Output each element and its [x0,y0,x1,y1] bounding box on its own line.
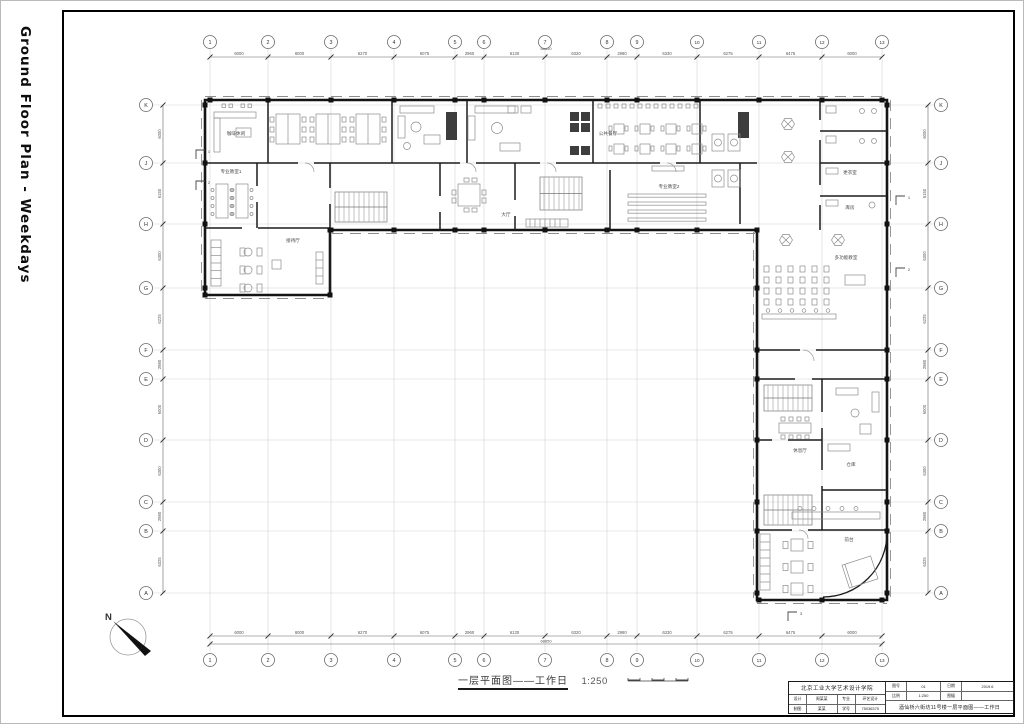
svg-text:B: B [939,529,943,535]
svg-text:K: K [144,103,148,109]
svg-text:6000: 6000 [295,51,305,56]
svg-text:3: 3 [330,40,333,46]
title-block: 北京工业大学艺术设计学院 设计 周某某 专业 环艺设计 制图 某某 学号 750… [788,681,1014,714]
svg-text:B: B [144,529,148,535]
info-label: 日期 [941,682,962,691]
svg-text:K: K [939,103,943,109]
room-label-classroom1: 专业教室1 [221,168,242,175]
svg-text:6300: 6300 [157,466,162,476]
svg-text:6325: 6325 [922,557,927,567]
svg-text:6475: 6475 [786,51,796,56]
school-name: 北京工业大学艺术设计学院 [789,682,885,695]
svg-text:1: 1 [209,658,212,664]
svg-text:H: H [939,222,943,228]
svg-text:J: J [940,161,943,167]
svg-text:68850: 68850 [540,639,552,644]
svg-text:3: 3 [330,658,333,664]
svg-text:J: J [145,161,148,167]
info-value: 01 [907,682,941,691]
svg-text:6000: 6000 [847,630,857,635]
info-label: 比例 [886,692,907,701]
svg-text:6270: 6270 [358,51,368,56]
svg-text:10: 10 [694,658,700,663]
svg-text:2980: 2980 [922,359,927,369]
svg-text:10: 10 [694,40,700,45]
svg-text:6000: 6000 [234,630,244,635]
svg-text:6000: 6000 [157,404,162,414]
svg-text:6000: 6000 [295,630,305,635]
svg-text:8: 8 [606,658,609,664]
credits-row: 设计 周某某 专业 环艺设计 [789,695,885,705]
svg-text:4: 4 [393,658,396,664]
svg-text:2980: 2980 [157,511,162,521]
north-label: N [105,612,112,623]
drawing-title: 酒仙桥六街坊11号楼一层平面图——工作日 [886,701,1013,713]
svg-text:6130: 6130 [510,630,520,635]
dimension-lines: 6000600062706075296061306320298063306275… [157,46,931,647]
svg-text:6000: 6000 [922,404,927,414]
credit-label: 设计 [789,695,807,704]
svg-text:6000: 6000 [847,51,857,56]
furniture-static [214,104,879,588]
room-label-hall: 大厅 [501,211,511,218]
credit-value: 周某某 [807,695,838,704]
title-block-left: 北京工业大学艺术设计学院 设计 周某某 专业 环艺设计 制图 某某 学号 750… [789,682,886,713]
room-label-frontdesk: 前台 [844,536,854,543]
door-arcs [305,163,814,539]
svg-text:6320: 6320 [571,51,581,56]
caption-scale: 1:250 [581,676,607,687]
svg-text:6300: 6300 [922,466,927,476]
svg-text:9: 9 [636,40,639,46]
info-value [962,692,1013,701]
svg-text:6330: 6330 [662,51,672,56]
equipment-dark [446,112,749,155]
credit-value: 某某 [807,705,838,714]
room-label-reception: 接待厅 [286,237,300,244]
floor-plan-canvas: 6000600062706075296061306320298063306275… [0,0,1024,724]
svg-text:2980: 2980 [617,51,627,56]
svg-text:1: 1 [908,195,911,200]
svg-text:6: 6 [483,658,486,664]
svg-text:6300: 6300 [157,251,162,261]
room-label-classroom2: 专业教室2 [659,183,680,190]
svg-text:3: 3 [800,611,803,616]
svg-text:1: 1 [209,40,212,46]
svg-text:8: 8 [606,40,609,46]
room-label-dining: 公共餐厅 [599,130,618,137]
svg-text:1: 1 [208,149,211,154]
svg-text:6075: 6075 [420,630,430,635]
room-label-changing: 更衣室 [843,169,857,176]
svg-text:2: 2 [267,40,270,46]
svg-text:6325: 6325 [157,557,162,567]
svg-text:5: 5 [454,658,457,664]
svg-text:6130: 6130 [510,51,520,56]
svg-text:2: 2 [208,180,211,185]
credit-value: 环艺设计 [856,695,886,704]
svg-text:6150: 6150 [922,188,927,198]
svg-text:2960: 2960 [465,51,475,56]
svg-text:6300: 6300 [922,251,927,261]
room-label-multi: 多功能教室 [835,254,858,261]
svg-text:6225: 6225 [157,314,162,324]
title-block-right: 图号 01 日期 2019.6 比例 1:250 图幅 酒仙桥六街坊11号楼一层… [886,682,1013,713]
svg-text:6475: 6475 [786,630,796,635]
svg-text:2960: 2960 [465,630,475,635]
north-needle [113,621,151,656]
svg-text:2980: 2980 [617,630,627,635]
credit-label: 学号 [838,705,856,714]
svg-text:6: 6 [483,40,486,46]
svg-text:C: C [939,500,943,506]
svg-text:E: E [144,377,148,383]
svg-text:E: E [939,377,943,383]
svg-text:6320: 6320 [571,630,581,635]
svg-text:G: G [939,286,943,292]
svg-text:6275: 6275 [723,51,733,56]
credit-label: 专业 [838,695,856,704]
svg-text:2: 2 [267,658,270,664]
svg-text:D: D [144,438,148,444]
svg-text:11: 11 [757,658,762,663]
svg-text:13: 13 [879,40,885,45]
room-label-store1: 库房 [845,204,855,211]
svg-text:A: A [144,591,148,597]
info-row: 比例 1:250 图幅 [886,692,1013,702]
svg-text:6000: 6000 [922,129,927,139]
svg-text:6330: 6330 [662,630,672,635]
caption-title: 一层平面图——工作日 [458,676,568,690]
svg-text:6150: 6150 [157,188,162,198]
svg-text:6270: 6270 [358,630,368,635]
svg-text:12: 12 [819,40,825,45]
credit-label: 制图 [789,705,807,714]
info-value: 2019.6 [962,682,1013,691]
north-arrow [110,619,151,656]
svg-text:11: 11 [757,40,762,45]
svg-text:6000: 6000 [157,129,162,139]
credit-value: 75036375 [856,705,886,714]
svg-text:4: 4 [393,40,396,46]
svg-text:9: 9 [636,658,639,664]
svg-text:C: C [144,500,148,506]
svg-text:6000: 6000 [234,51,244,56]
room-label-store2: 仓库 [846,461,856,468]
svg-text:6275: 6275 [723,630,733,635]
grid-bubbles: 1122334455667788991010111112121313KKJJHH… [140,36,948,667]
info-value: 1:250 [907,692,941,701]
room-labels: 咖啡休闲公共餐厅专业教室1专业教室2大厅接待厅更衣室库房多功能教室休息厅仓库前台 [221,130,858,543]
svg-text:G: G [144,286,148,292]
room-label-lounge: 休息厅 [793,447,807,454]
svg-text:7: 7 [544,40,547,46]
svg-text:2: 2 [908,267,911,272]
svg-text:H: H [144,222,148,228]
svg-text:D: D [939,438,943,444]
svg-text:12: 12 [819,658,825,663]
info-row: 图号 01 日期 2019.6 [886,682,1013,692]
scale-bar [626,674,692,685]
interior-walls [205,100,887,530]
svg-text:2980: 2980 [157,359,162,369]
svg-text:6225: 6225 [922,314,927,324]
info-label: 图幅 [941,692,962,701]
svg-text:13: 13 [879,658,885,663]
curved-wall [823,533,887,597]
svg-text:6075: 6075 [420,51,430,56]
credits-row: 制图 某某 学号 75036375 [789,705,885,714]
svg-text:2980: 2980 [922,511,927,521]
room-label-coffee: 咖啡休闲 [227,130,246,137]
svg-text:5: 5 [454,40,457,46]
drawing-caption: 一层平面图——工作日 1:250 [458,671,692,689]
svg-text:7: 7 [544,658,547,664]
info-label: 图号 [886,682,907,691]
svg-text:A: A [939,591,943,597]
